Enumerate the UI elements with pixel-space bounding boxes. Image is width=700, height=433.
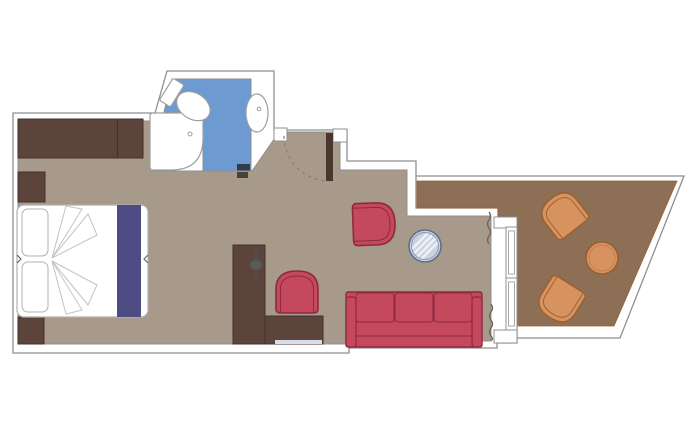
bed-runner [117, 205, 141, 317]
double-bed [17, 205, 148, 317]
floor-plan-svg [0, 0, 700, 433]
bathroom-threshold-marker [237, 172, 248, 178]
sliding-glass-door [506, 227, 517, 330]
sofa-base [346, 292, 482, 347]
nightstand-top [18, 172, 45, 202]
pillow-top [22, 209, 48, 256]
window-wall-stub-top [494, 217, 517, 228]
entrance-door-leaf [326, 133, 333, 181]
bathroom-door-marker [237, 164, 250, 171]
window-wall-stub-bottom [494, 330, 517, 343]
desk-strip [275, 340, 322, 344]
washbasin [246, 94, 268, 132]
balcony-table [586, 242, 618, 274]
floor-plan [0, 0, 700, 433]
armchair-shell [352, 202, 395, 245]
armchair [352, 202, 395, 245]
entrance-wall-right [333, 129, 347, 142]
desk-top [265, 316, 323, 344]
desk-chair-shell [276, 271, 318, 313]
balcony-table-top [586, 242, 618, 274]
sofa-armrest-left [346, 297, 356, 347]
nightstand-bottom [18, 317, 44, 344]
sliding-door-panel-top [506, 227, 517, 278]
desk-cabinet [233, 245, 265, 344]
entrance-wall-left [274, 128, 287, 141]
sofa [346, 292, 482, 347]
pillow-bottom [22, 262, 48, 312]
desk-chair [276, 271, 318, 313]
wardrobe-body [18, 119, 143, 158]
sliding-door-panel-bottom [506, 278, 517, 330]
tv-swivel-icon [250, 260, 263, 270]
sofa-armrest-right [472, 297, 482, 347]
shower [150, 113, 203, 170]
wardrobe [18, 119, 143, 158]
glass-coffee-table [409, 230, 441, 262]
